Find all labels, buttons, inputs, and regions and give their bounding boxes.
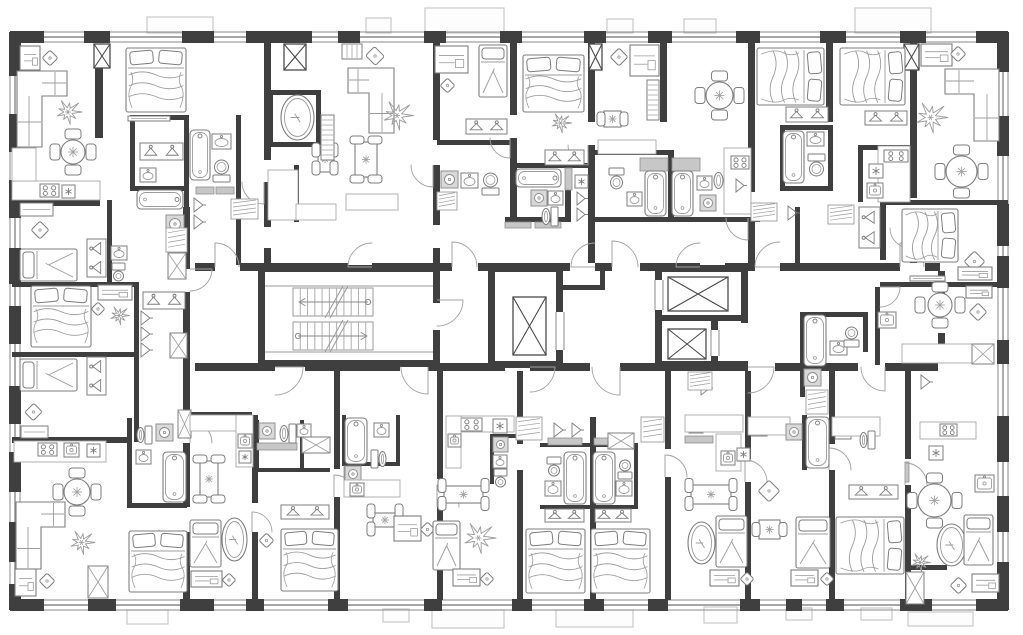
cabX-symbol [170,333,187,358]
mat-symbol [641,417,664,442]
counter-symbol [748,417,790,435]
bedD-symbol [126,48,186,112]
fridge-symbol [493,419,507,433]
elevator-shaft [668,329,706,359]
washer-symbol [493,437,508,452]
bedS-symbol [20,359,77,391]
tub-symbol [190,130,210,180]
wc-symbol [137,426,152,444]
fridge-symbol [869,164,883,178]
door-swing [275,367,303,395]
tableS-symbol [685,479,737,511]
door-swing [411,165,433,187]
ward-symbol [595,509,631,522]
elevator-shaft [284,44,306,70]
ksink-symbol [448,434,461,447]
counter-symbol [190,415,240,431]
chair-symbol [740,572,754,586]
chair-symbol [91,302,105,316]
mat-symbol [688,372,712,390]
door-swing [452,242,477,267]
fridge-symbol [737,448,750,461]
ward-symbol [281,505,329,519]
plant-symbol [917,103,948,133]
tubO-symbol [688,522,715,564]
desk-symbol [394,516,421,541]
chair-symbol [440,78,455,93]
wc-symbol [618,460,632,479]
desk-symbol [958,267,992,280]
bedD-symbol [836,517,904,574]
washer-symbol [786,424,802,440]
bedD-symbol [757,48,824,105]
cabX-symbol [906,572,924,604]
door-swing [861,367,885,391]
bedD-symbol [31,286,91,347]
tub-symbol [593,452,615,504]
sofaL-symbol [945,69,999,141]
wc-symbol [213,160,230,182]
shelf-symbol [342,44,362,59]
fridge-symbol [575,175,588,188]
plant-symbol [111,307,130,325]
desk-symbol [710,570,739,586]
desk-symbol [791,570,818,586]
chair-symbol [480,572,494,586]
mat-symbol [828,205,854,224]
tableS-symbol [350,136,382,183]
fridge-symbol [239,451,251,463]
stairwell [265,286,433,352]
bedS-symbol [20,249,77,281]
ward-symbol [466,119,507,134]
bedS-symbol [716,516,747,567]
hookH-symbol [572,423,584,437]
desk-symbol [972,574,999,592]
door-swing [348,243,372,267]
tableR-symbol [50,129,96,175]
desk-symbol [20,46,40,70]
tv-symbol [21,426,48,438]
door-swing [829,448,851,470]
door-swing [190,269,212,291]
wc-symbol [609,168,624,189]
hob-symbol [461,418,482,431]
door-swing [215,243,239,267]
door-swing [437,300,463,326]
sofaL-symbol [16,502,65,569]
bedS-symbol [190,520,221,567]
bedS-symbol [433,521,460,570]
interior-walls-layer [12,42,1008,600]
hookH-symbol [141,327,153,341]
hookH-symbol [921,375,933,389]
fridge-symbol [87,444,100,457]
wc-symbol [494,469,507,487]
ward-symbol [545,509,584,522]
chair-symbol [39,573,55,589]
elevator-shaft [94,44,110,68]
tub-symbol [564,452,586,504]
tv-symbol [128,116,170,121]
hob-symbol [40,184,59,197]
desk-symbol [435,46,468,73]
tubO-symbol [281,95,314,140]
bedD-symbol [129,531,187,592]
shelfV-symbol [647,80,659,120]
wc-symbol [112,263,125,281]
tv-symbol [910,276,945,281]
hob-symbol [884,150,908,162]
wc-symbol [547,457,561,476]
cabX-symbol [168,253,186,279]
cabX-symbol [302,437,330,453]
ksink-symbol [878,312,896,328]
sofaL-symbol [348,68,394,133]
hookH-symbol [554,423,566,437]
table2-symbol [752,520,787,539]
sinkS-symbol [545,481,561,496]
counter-symbol [902,344,972,363]
sinkS-symbol [140,168,156,182]
desk-symbol [921,44,952,66]
sinkS-symbol [807,132,824,146]
washer-symbol [441,171,458,188]
washer-symbol [700,195,716,211]
sinkS-symbol [627,192,642,206]
counter-symbol [12,148,36,181]
elevator-shaft [589,44,602,70]
ksink-symbol [350,483,364,496]
wc-symbol [371,450,386,468]
plant-symbol [71,531,95,554]
sinkS-symbol [297,424,311,437]
desk-symbol [15,569,36,596]
cabX-symbol [608,433,634,449]
chair-symbol [969,303,987,321]
door-swing [401,367,428,394]
ward-symbol [140,143,183,160]
sinkS-symbol [461,173,478,188]
hookH-symbol [577,208,588,221]
chair-symbol [31,221,49,239]
bedS-symbol [479,45,507,97]
tubO-symbol [937,524,966,566]
counter-symbol [598,140,656,154]
wc-symbol [280,424,296,443]
tableR-symbol [935,145,988,198]
ksink-symbol [721,451,735,465]
sinkS-symbol [136,450,151,464]
sinkS-symbol [493,455,507,468]
door-swing [755,242,780,267]
tub-symbol [783,131,804,183]
tableR-symbol [695,71,744,120]
hob-symbol [731,156,749,169]
mat-symbol [516,417,542,440]
ksink-symbol [975,475,994,492]
desk-symbol [966,286,992,298]
ksink-symbol [64,443,79,457]
counter-symbol [268,170,298,220]
tubO-symbol [222,518,247,561]
bedS-symbol [796,517,830,568]
cabX-symbol [88,566,108,598]
mat-symbol [751,203,777,221]
tv-symbol [20,203,53,216]
hookH-symbol [141,343,153,357]
washer-symbol [804,369,821,386]
chair-symbol [758,480,780,502]
fridge-symbol [62,185,75,198]
ksink-symbol [867,183,883,198]
floor-plan-canvas [0,0,1023,635]
hookH-symbol [194,215,206,229]
cabX-symbol [972,344,994,364]
tableR-symbol [915,282,965,328]
hob-symbol [940,424,957,436]
plant-symbol [552,114,571,133]
hookH-symbol [141,311,153,325]
tub-symbol [137,190,183,209]
tableS-symbol [438,479,489,511]
bedD-symbol [840,48,905,105]
mat-symbol [231,199,258,219]
elevator-shaft [668,277,728,311]
bedS-symbol [964,515,993,565]
hookH-symbol [577,192,588,205]
tub-symbol [645,171,666,216]
ward-symbol [849,485,898,499]
plant-symbol [465,524,496,554]
sinkS-symbol [697,176,712,190]
desk-symbol [191,571,222,587]
chair-symbol [366,47,385,66]
wardV-symbol [859,207,880,248]
wc-symbol [860,431,875,449]
door-swing [748,367,774,393]
elevator-door [655,280,663,310]
tableS-symbol [193,455,225,503]
plant-symbol [57,100,82,124]
sinkS-symbol [374,423,389,437]
ward-symbol [143,292,185,309]
wardV-symbol [87,239,106,277]
door-swing [880,287,900,307]
elevator-door [711,330,719,356]
chair-symbol [259,533,274,548]
wardV-symbol [87,357,106,395]
tub-symbol [672,171,693,216]
ksink-symbol [238,434,252,448]
door-swing [665,455,687,477]
wc-symbol [844,327,859,347]
bedD-symbol [902,209,958,262]
tub-symbol [345,418,367,464]
wc-symbol [482,173,499,195]
tub-symbol [806,417,829,468]
furniture-layer [12,44,999,604]
counter-symbol [296,204,336,220]
washer-symbol [259,423,275,439]
hookH-symbol [194,198,206,212]
chair-symbol [950,577,967,594]
cabX-symbol [178,410,191,438]
bedD-symbol [281,529,338,591]
ward-symbol [786,107,828,122]
ward-symbol [545,150,584,165]
door-swing [592,367,620,395]
chair-symbol [610,48,628,66]
bedD-symbol [523,55,584,112]
bedD-symbol [526,529,585,593]
door-swing [612,241,638,267]
counter-symbol [346,194,398,210]
bedD-symbol [591,529,650,593]
shelfV-symbol [321,115,334,160]
mat-symbol [806,390,828,414]
counter-symbol [685,415,743,432]
ward-symbol [865,111,907,125]
desk-symbol [453,569,480,586]
door-swing [252,512,272,532]
hob-symbol [38,443,57,456]
floor-plan-page [0,0,1023,635]
tub-symbol [163,452,186,502]
tableR-symbol [907,473,962,528]
washer-symbol [156,424,173,441]
sinkS-symbol [616,481,632,496]
sinkS-symbol [548,191,563,205]
door-swing [745,460,767,482]
table2-symbol [597,111,628,127]
elevator-shaft [904,44,919,70]
desk-symbol [98,285,132,300]
chair-symbol [25,403,42,420]
sinkS-symbol [111,246,127,260]
chair-symbol [222,573,236,587]
mat-symbol [437,192,457,210]
desk-symbol [630,45,659,76]
fridge-symbol [929,446,943,460]
washer-symbol [531,190,547,206]
elevator-door [556,312,564,350]
mat-symbol [166,228,187,252]
chair-symbol [42,50,58,66]
wc-symbol [808,154,825,176]
sinkS-symbol [212,134,231,149]
tub-symbol [516,169,561,187]
tub-symbol [804,315,826,366]
elevator-shaft [513,297,546,355]
